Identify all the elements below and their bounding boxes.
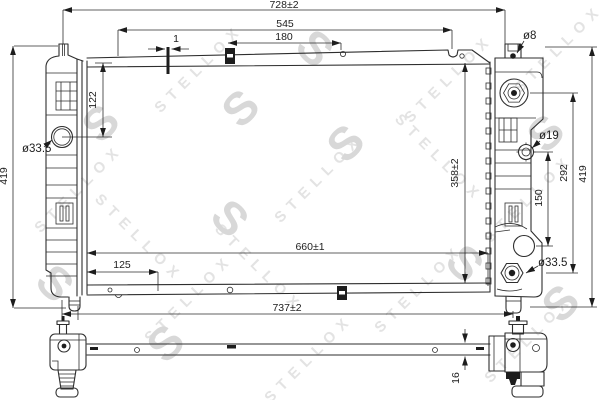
dim-dia19: ø19 <box>532 130 559 148</box>
dim-label-dia33-right: ø33.5 <box>538 257 567 269</box>
dim-660: 660±1 <box>87 241 488 286</box>
dim-label-150: 150 <box>533 189 545 207</box>
fitting-bottom-right <box>489 316 547 397</box>
dim-dia33-left: ø33.5 <box>22 140 52 155</box>
bottom-view <box>50 316 547 397</box>
clip-bracket-right <box>505 203 522 226</box>
outlet-port <box>514 236 535 257</box>
tank-bracket-lower <box>56 203 73 224</box>
dim-label-419-right: 419 <box>577 165 589 183</box>
drain-plug <box>501 264 523 283</box>
core-bottom-band <box>87 283 490 300</box>
top-bracket <box>505 44 521 59</box>
left-tank <box>46 44 87 311</box>
tank-ribs-right <box>495 150 531 232</box>
mid-bracket <box>499 118 517 142</box>
outlet-boss <box>495 223 535 291</box>
tank-ribs <box>46 73 77 276</box>
hole-8mm <box>510 53 516 59</box>
dim-label-660: 660±1 <box>295 241 324 253</box>
dim-label-292: 292 <box>558 164 570 182</box>
core-strip <box>87 344 490 355</box>
dim-label-737: 737±2 <box>272 302 301 314</box>
dim-150: 150 <box>533 152 553 246</box>
radiator-drawing: 728±2 545 180 1 <box>0 0 600 400</box>
offset-tick <box>167 47 170 74</box>
dim-label-358: 358±2 <box>449 158 461 187</box>
dim-label-545: 545 <box>276 18 294 30</box>
dim-label-419-left: 419 <box>0 167 10 185</box>
mount-clip-top <box>225 48 235 64</box>
dim-label-122: 122 <box>87 91 99 109</box>
fitting-19mm <box>517 143 536 162</box>
dim-label-125: 125 <box>113 259 131 271</box>
dim-label-180: 180 <box>275 31 293 43</box>
dim-1: 1 <box>148 33 189 49</box>
technical-diagram: STELLOX STELLOX STELLOX STELLOX STELLOX … <box>0 0 600 400</box>
dim-label-728: 728±2 <box>269 0 298 11</box>
dim-358: 358±2 <box>449 63 465 283</box>
dim-dia33-right: ø33.5 <box>526 257 567 273</box>
dim-label-dia8: ø8 <box>523 30 536 42</box>
dim-label-dia33-left: ø33.5 <box>22 143 51 155</box>
right-tank <box>486 44 543 313</box>
bottom-stub-right <box>506 297 521 313</box>
hose-connector <box>56 370 78 397</box>
dim-dia8: ø8 <box>517 30 536 53</box>
mount-clip-bottom <box>337 286 347 300</box>
tank-bracket-upper <box>56 82 77 110</box>
filler-cap <box>495 72 542 118</box>
dim-label-1: 1 <box>173 33 179 45</box>
dim-180: 180 <box>228 31 341 50</box>
front-view <box>46 44 543 313</box>
dim-16: 16 <box>450 329 465 384</box>
core-top-band <box>87 47 490 74</box>
fitting-bottom-left <box>50 316 86 397</box>
dim-label-16: 16 <box>450 372 462 384</box>
dim-125: 125 <box>87 259 158 291</box>
dim-label-dia19: ø19 <box>539 130 559 142</box>
dim-737: 737±2 <box>62 300 513 320</box>
